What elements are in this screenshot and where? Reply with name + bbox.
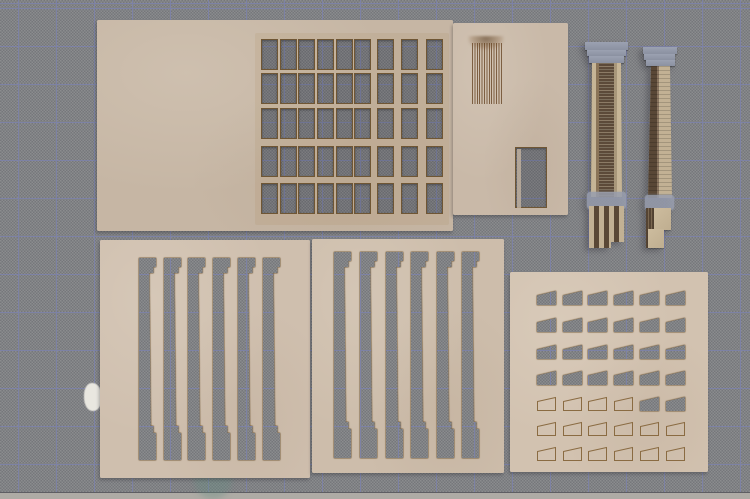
pilaster-cutout [360,252,377,458]
hole-shading [299,109,314,138]
hole-shading [262,147,277,176]
pilaster-cutout [164,258,181,460]
pilaster-cutout [386,252,403,458]
scored-cut-line [589,423,607,436]
trapezoid-cutout [614,291,633,305]
hole-shading [427,74,442,103]
pilaster-cutout-wrap [360,252,377,458]
cut-piece-edge [517,149,521,208]
hole-shading [139,258,156,460]
scored-cut-line [538,398,556,411]
trapezoid-scored-outline [614,422,633,436]
trapezoid-scored-outline [537,397,556,411]
scored-cut-line [667,448,685,461]
scored-cut-line [564,448,582,461]
trapezoid-cutout [666,345,685,359]
column-capital-slab [643,47,677,54]
trapezoid-cutout [537,318,556,332]
hole-shading [334,252,351,458]
trapezoid-cutout [666,397,685,411]
trapezoid-cutout [640,397,659,411]
trapezoid-cutout [614,318,633,332]
pilaster-cutout [188,258,205,460]
pilaster-cutout-wrap [188,258,205,460]
punched-hole [261,108,278,139]
column-capital-neck [589,56,624,63]
punched-hole [280,183,297,214]
sheet-pilasters-right [312,239,504,473]
scored-cut-line [589,398,607,411]
trapezoid-cutout [563,291,582,305]
trapezoid-cutout-wrap [640,397,659,411]
trapezoid-cutout-wrap [537,371,556,385]
hole-shading [666,291,685,305]
punched-hole [426,146,443,177]
pilaster-cutout-wrap [437,252,454,458]
trapezoid-scored-outline [563,447,582,461]
pilaster-cutout-wrap [334,252,351,458]
pilaster-cutout [334,252,351,458]
hole-shading [355,40,370,69]
scored-cut-line [615,398,633,411]
hole-shading [640,371,659,385]
hole-shading [402,74,417,103]
hole-shading [378,109,393,138]
punched-hole [280,73,297,104]
trapezoid-cutout [537,291,556,305]
pilaster-cutout-wrap [411,252,428,458]
punched-hole [298,73,315,104]
punched-hole [261,73,278,104]
punched-hole [354,73,371,104]
punched-hole [401,183,418,214]
trapezoid-cutout [588,291,607,305]
column-assembled-left [585,42,628,248]
hole-shading [386,252,403,458]
scored-cut-line [641,448,659,461]
trapezoid-scored-outline [588,397,607,411]
sheet-pilasters-left [100,240,310,478]
hole-shading [355,74,370,103]
hole-shading [640,345,659,359]
trapezoid-cutout-wrap [614,345,633,359]
pilaster-cutout [238,258,255,460]
trapezoid-cutout [563,371,582,385]
hole-shading [318,184,333,213]
trapezoid-cutout [666,371,685,385]
hole-shading [437,252,454,458]
hole-shading [666,397,685,411]
hole-shading [666,345,685,359]
trapezoid-scored-outline [563,397,582,411]
trapezoid-cutout-wrap [640,345,659,359]
hole-shading [378,74,393,103]
hole-shading [238,258,255,460]
trapezoid-scored-outline [537,447,556,461]
punched-hole [317,183,334,214]
trapezoid-cutout [640,345,659,359]
photo-laser-cut-model-parts [0,0,750,499]
pilaster-cutout [263,258,280,460]
punched-hole [426,183,443,214]
pilaster-cutout-wrap [386,252,403,458]
hole-shading [355,147,370,176]
hole-shading [588,291,607,305]
trapezoid-cutout [537,345,556,359]
hole-shading [427,147,442,176]
hole-shading [402,184,417,213]
trapezoid-cutout [640,291,659,305]
column-assembled-right [643,47,677,248]
trapezoid-scored-outline [537,422,556,436]
hole-shading [355,109,370,138]
hole-shading [281,40,296,69]
pilaster-cutout-wrap [238,258,255,460]
hole-shading [614,345,633,359]
punched-hole [377,108,394,139]
pilaster-cutout [213,258,230,460]
trapezoid-cutout-wrap [614,291,633,305]
hole-shading [281,184,296,213]
punched-hole [317,146,334,177]
column-base-laminations [589,206,624,242]
trapezoid-cutout [614,345,633,359]
column-base-block-upper [654,208,671,230]
scored-cut-line [564,423,582,436]
hole-shading [588,345,607,359]
trapezoid-cutout-wrap [537,291,556,305]
punched-hole [336,39,353,70]
hole-shading [337,74,352,103]
hole-shading [337,147,352,176]
hole-shading [462,252,479,458]
sheet-window-grid [97,20,453,231]
pilaster-cutout [437,252,454,458]
trapezoid-cutout-wrap [563,291,582,305]
hole-shading [213,258,230,460]
trapezoid-cutout [588,318,607,332]
punched-hole [354,183,371,214]
table-surface [0,492,750,499]
scored-cut-line [641,423,659,436]
hole-shading [640,291,659,305]
trapezoid-scored-outline [614,447,633,461]
column-base-block-lower [648,229,664,248]
hole-shading [588,318,607,332]
punched-hole [298,183,315,214]
hole-shading [666,371,685,385]
hole-shading [614,291,633,305]
hole-shading [318,147,333,176]
trapezoid-cutout-wrap [640,371,659,385]
hole-shading [263,258,280,460]
punched-hole [336,183,353,214]
hole-shading [614,318,633,332]
hole-shading [262,74,277,103]
hole-shading [563,371,582,385]
scored-cut-line [589,448,607,461]
trapezoid-scored-outline [588,447,607,461]
trapezoid-cutout [588,371,607,385]
trapezoid-cutout-wrap [563,318,582,332]
punched-hole [336,108,353,139]
trapezoid-cutout-wrap [640,318,659,332]
trapezoid-cutout-wrap [588,345,607,359]
hole-shading [299,184,314,213]
hole-shading [563,345,582,359]
hole-shading [614,371,633,385]
punched-hole [280,39,297,70]
hatch-score-lines [472,43,502,104]
punched-hole [280,108,297,139]
trapezoid-scored-outline [563,422,582,436]
hole-shading [281,74,296,103]
sheet-corbel-grid [510,272,708,472]
column-capital-neck [646,60,675,66]
hole-shading [262,184,277,213]
hole-shading [537,291,556,305]
hole-shading [402,147,417,176]
punched-hole [426,73,443,104]
hole-shading [427,109,442,138]
hole-shading [427,184,442,213]
hole-shading [281,109,296,138]
hole-shading [188,258,205,460]
punched-hole [401,108,418,139]
punched-hole [401,39,418,70]
hole-shading [281,147,296,176]
hole-shading [337,40,352,69]
trapezoid-cutout-wrap [666,291,685,305]
hole-shading [563,318,582,332]
punched-hole [298,108,315,139]
trapezoid-cutout-wrap [666,345,685,359]
pilaster-cutout [139,258,156,460]
trapezoid-cutout-wrap [666,397,685,411]
trapezoid-cutout [563,318,582,332]
hole-shading [337,109,352,138]
pilaster-cutout-wrap [213,258,230,460]
trapezoid-cutout-wrap [666,371,685,385]
trapezoid-scored-outline [588,422,607,436]
hole-shading [318,40,333,69]
punched-hole [426,108,443,139]
punched-hole [426,39,443,70]
hole-shading [299,40,314,69]
scored-cut-line [564,398,582,411]
trapezoid-cutout [640,318,659,332]
trapezoid-cutout-wrap [563,345,582,359]
hole-shading [640,318,659,332]
punched-hole [336,73,353,104]
trapezoid-cutout-wrap [588,291,607,305]
scored-cut-line [667,423,685,436]
column-shaft-side [648,66,672,198]
pilaster-cutout [462,252,479,458]
pilaster-cutout-wrap [263,258,280,460]
pilaster-cutout-wrap [139,258,156,460]
hole-shading [588,371,607,385]
punched-hole [354,146,371,177]
punched-hole [280,146,297,177]
scored-cut-line [538,423,556,436]
hole-shading [318,74,333,103]
trapezoid-cutout [563,345,582,359]
trapezoid-cutout [640,371,659,385]
trapezoid-cutout [537,371,556,385]
punched-hole [298,146,315,177]
punched-hole [354,108,371,139]
trapezoid-cutout-wrap [537,318,556,332]
punched-hole [377,146,394,177]
hole-shading [537,318,556,332]
trapezoid-cutout [588,345,607,359]
hole-shading [427,40,442,69]
hole-shading [299,147,314,176]
trapezoid-cutout-wrap [614,371,633,385]
trapezoid-scored-outline [666,422,685,436]
pilaster-cutout [411,252,428,458]
column-capital-slab [585,42,628,50]
trapezoid-cutout-wrap [588,371,607,385]
hole-shading [262,109,277,138]
punched-hole [261,146,278,177]
punched-hole [401,73,418,104]
hole-shading [537,371,556,385]
punched-hole [336,146,353,177]
trapezoid-cutout-wrap [537,345,556,359]
scored-cut-line [615,423,633,436]
scored-cut-line [538,448,556,461]
sheet-hatch-panel [453,23,568,215]
punched-hole [354,39,371,70]
hole-shading [299,74,314,103]
punched-hole [401,146,418,177]
trapezoid-cutout-wrap [666,318,685,332]
punched-hole [261,183,278,214]
hole-shading [355,184,370,213]
hole-shading [640,397,659,411]
punched-hole [317,108,334,139]
trapezoid-scored-outline [666,447,685,461]
punched-hole [377,39,394,70]
trapezoid-cutout [666,318,685,332]
singe-mark [468,36,504,50]
punched-hole [377,73,394,104]
trapezoid-cutout [666,291,685,305]
hole-shading [318,109,333,138]
punched-hole [317,39,334,70]
trapezoid-scored-outline [640,422,659,436]
column-shaft-fluted [591,63,622,197]
hole-shading [164,258,181,460]
hole-shading [378,184,393,213]
hole-shading [378,40,393,69]
punched-hole [261,39,278,70]
pilaster-cutout-wrap [164,258,181,460]
trapezoid-scored-outline [614,397,633,411]
hole-shading [402,40,417,69]
trapezoid-cutout-wrap [588,318,607,332]
hole-shading [537,345,556,359]
hole-shading [666,318,685,332]
punched-hole [377,183,394,214]
hole-shading [378,147,393,176]
pilaster-cutout-wrap [462,252,479,458]
punched-hole [317,73,334,104]
scored-cut-line [615,448,633,461]
hole-shading [402,109,417,138]
hole-shading [563,291,582,305]
hole-shading [360,252,377,458]
trapezoid-cutout [614,371,633,385]
column-base-foot [589,240,611,248]
hole-shading [262,40,277,69]
hole-shading [411,252,428,458]
hole-shading [337,184,352,213]
trapezoid-cutout-wrap [563,371,582,385]
punched-hole [298,39,315,70]
trapezoid-cutout-wrap [614,318,633,332]
punched-hole [515,147,547,208]
trapezoid-cutout-wrap [640,291,659,305]
trapezoid-scored-outline [640,447,659,461]
